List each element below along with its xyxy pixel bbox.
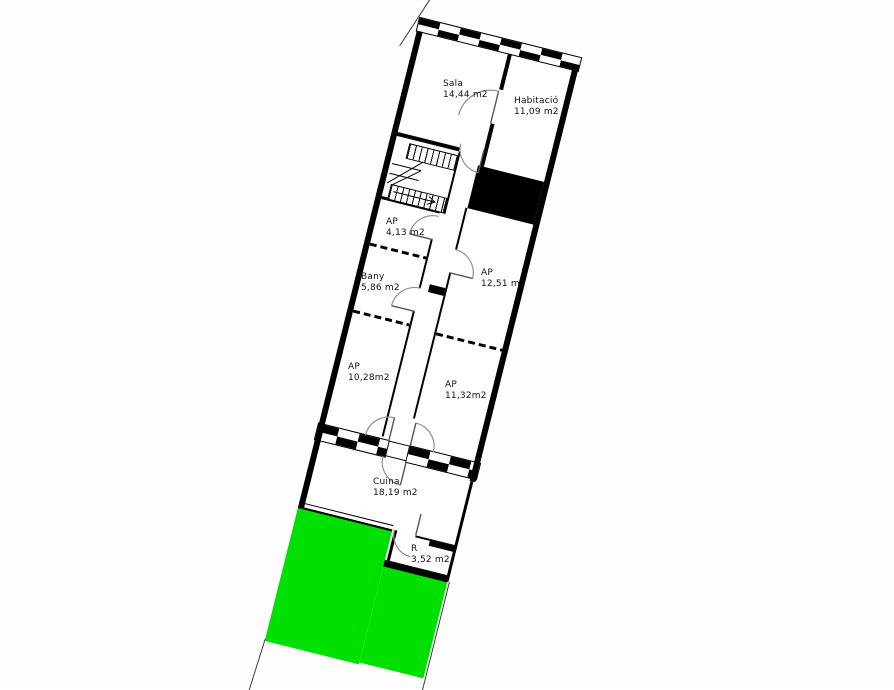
floorplan-canvas: Sala 14,44 m2 Habitació 11,09 m2 AP 4,13… bbox=[0, 0, 894, 690]
door-leaves bbox=[339, 79, 525, 536]
door-swing-arcs bbox=[334, 79, 525, 557]
thin-wall-lines bbox=[299, 424, 413, 526]
plot-boundary-lines bbox=[236, 0, 585, 690]
building-structure bbox=[264, 18, 581, 684]
stairs-winder-lines bbox=[384, 155, 443, 206]
plan-linework bbox=[229, 0, 610, 690]
